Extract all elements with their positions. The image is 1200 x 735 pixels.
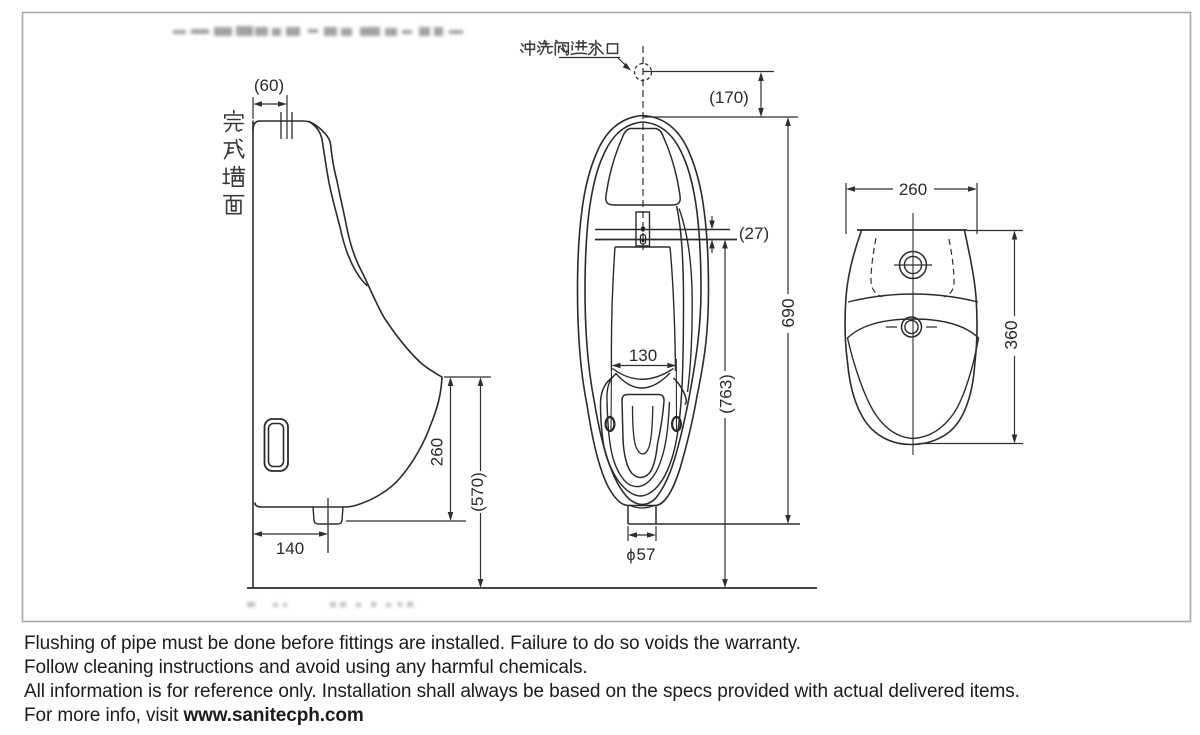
svg-text:130: 130	[629, 346, 657, 365]
svg-text:140: 140	[276, 539, 304, 558]
svg-text:(27): (27)	[739, 224, 769, 243]
svg-text:(570): (570)	[468, 472, 487, 512]
svg-text:(60): (60)	[254, 76, 284, 95]
svg-text:360: 360	[1001, 320, 1021, 349]
svg-text:(170): (170)	[709, 88, 749, 107]
svg-text:260: 260	[428, 438, 447, 466]
svg-text:ϕ57: ϕ57	[627, 545, 656, 564]
svg-text:(763): (763)	[717, 374, 736, 414]
svg-text:260: 260	[899, 180, 927, 199]
svg-text:690: 690	[778, 298, 798, 327]
